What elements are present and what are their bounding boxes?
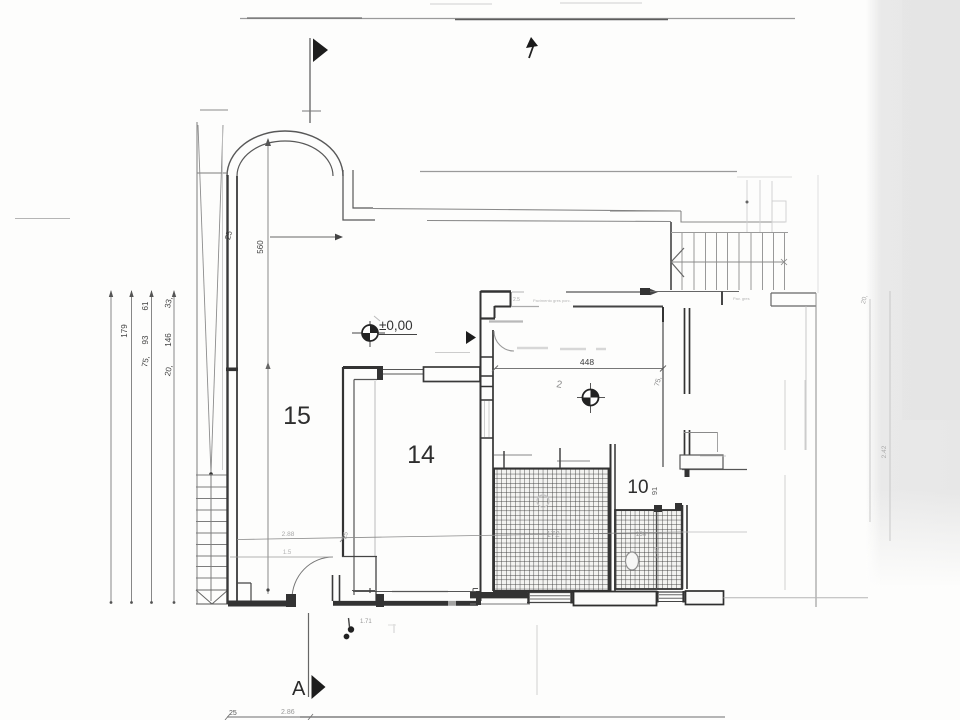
svg-text:75,: 75,: [654, 376, 663, 387]
svg-text:25: 25: [229, 710, 237, 717]
svg-text:150: 150: [636, 531, 647, 538]
svg-text:91: 91: [650, 487, 659, 495]
svg-text:61: 61: [141, 301, 150, 310]
svg-text:20,: 20,: [163, 364, 174, 377]
svg-text:2: 2: [555, 379, 563, 391]
svg-text:75,: 75,: [140, 355, 151, 368]
svg-text:±0,00: ±0,00: [379, 318, 413, 333]
svg-text:Pavimento gres porc.: Pavimento gres porc.: [533, 298, 571, 303]
svg-text:25: 25: [341, 531, 350, 540]
svg-text:179: 179: [120, 324, 129, 338]
svg-text:14: 14: [407, 441, 435, 469]
svg-text:Pav. gres: Pav. gres: [733, 296, 750, 301]
svg-text:2.86: 2.86: [281, 709, 295, 716]
svg-text:2.5: 2.5: [513, 297, 520, 303]
svg-text:93: 93: [141, 335, 150, 344]
svg-text:A: A: [292, 678, 306, 700]
svg-text:560: 560: [256, 240, 265, 254]
svg-text:146: 146: [164, 333, 173, 347]
svg-text:1.5: 1.5: [283, 550, 292, 556]
svg-text:10: 10: [627, 477, 648, 498]
svg-text:1.90: 1.90: [655, 547, 661, 559]
svg-text:1.71: 1.71: [360, 619, 372, 625]
svg-text:33,: 33,: [163, 296, 174, 309]
svg-text:15: 15: [283, 402, 311, 430]
svg-text:448: 448: [580, 357, 594, 367]
svg-text:2.42: 2.42: [881, 445, 888, 458]
svg-text:2.88: 2.88: [282, 531, 295, 538]
svg-text:172: 172: [546, 530, 560, 539]
